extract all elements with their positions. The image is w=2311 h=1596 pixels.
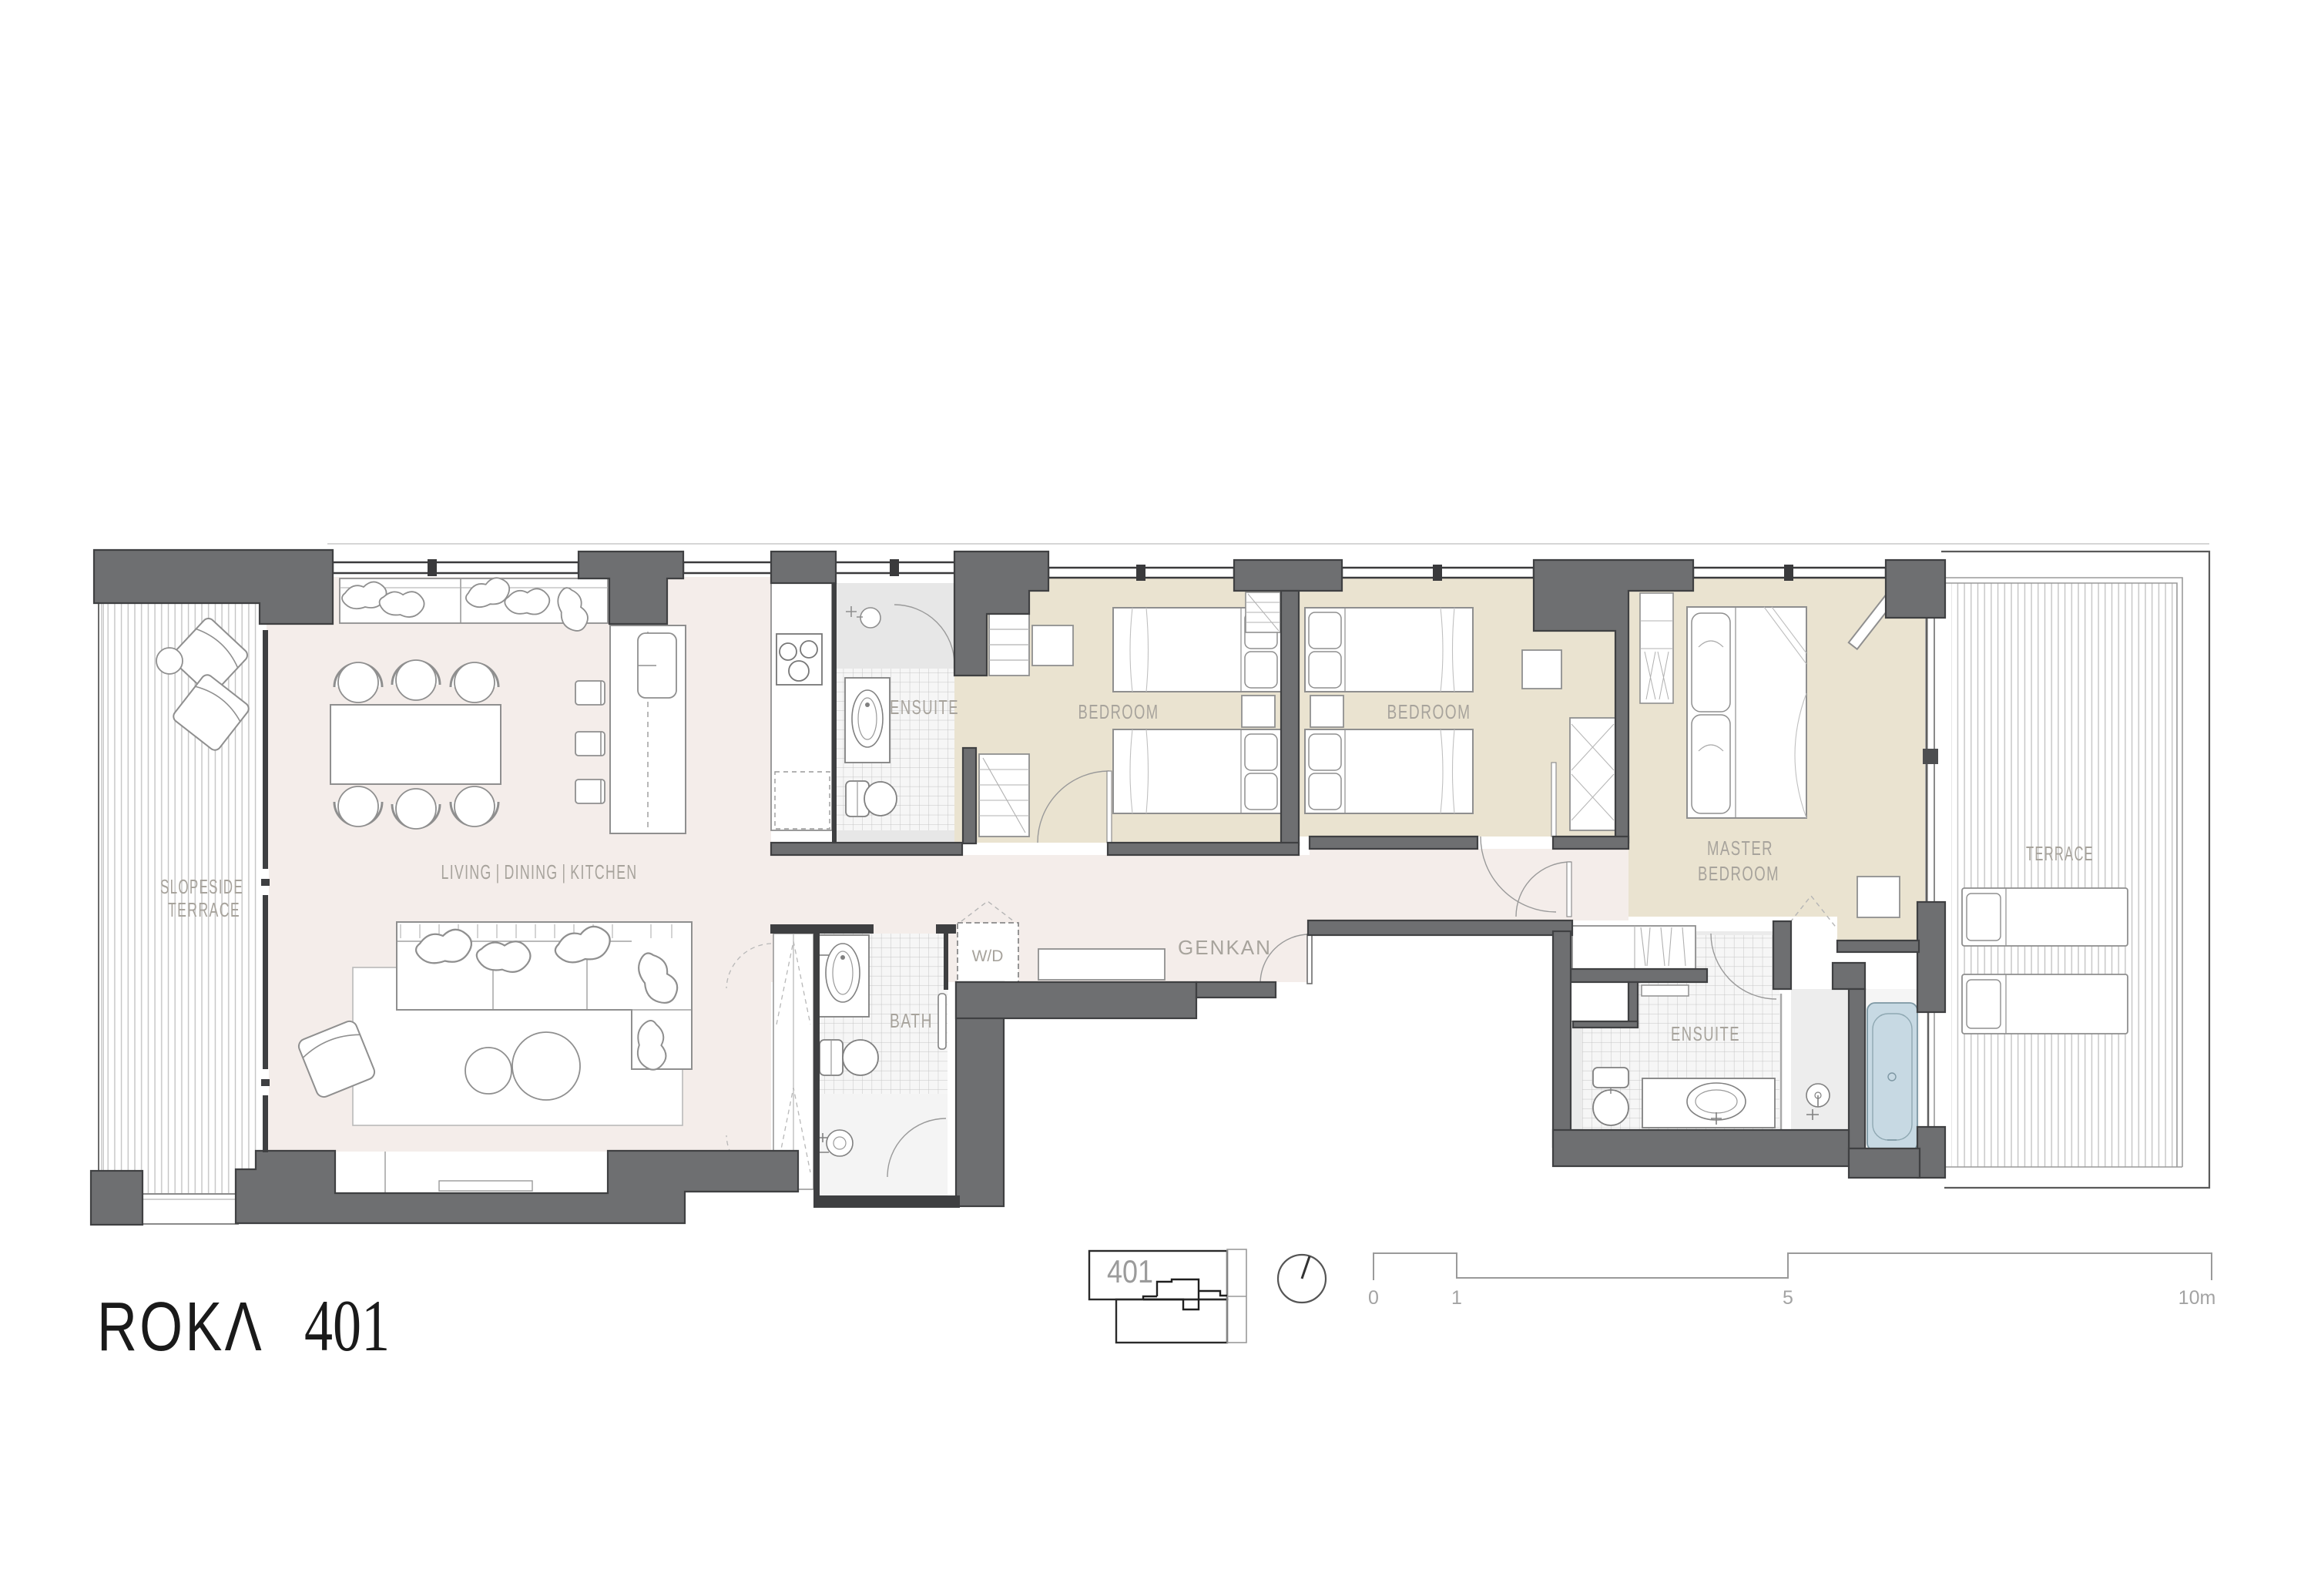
svg-text:ROKΛ: ROKΛ: [97, 1288, 264, 1365]
svg-text:ENSUITE: ENSUITE: [1671, 1022, 1740, 1045]
svg-text:LIVING | DINING | KITCHEN: LIVING | DINING | KITCHEN: [441, 860, 638, 883]
svg-text:BEDROOM: BEDROOM: [1078, 700, 1159, 723]
svg-text:1: 1: [1451, 1287, 1462, 1309]
svg-text:401: 401: [304, 1286, 390, 1366]
svg-text:W/D: W/D: [972, 947, 1004, 965]
svg-text:MASTER: MASTER: [1707, 837, 1773, 860]
svg-text:ENSUITE: ENSUITE: [890, 696, 959, 719]
svg-text:10m: 10m: [2179, 1287, 2216, 1309]
svg-text:0: 0: [1368, 1287, 1379, 1309]
svg-text:TERRACE: TERRACE: [168, 898, 240, 921]
svg-text:TERRACE: TERRACE: [2026, 842, 2094, 865]
svg-text:BEDROOM: BEDROOM: [1698, 862, 1779, 885]
svg-text:BATH: BATH: [890, 1009, 933, 1032]
svg-text:5: 5: [1783, 1287, 1793, 1309]
svg-text:GENKAN: GENKAN: [1178, 936, 1272, 959]
svg-text:BEDROOM: BEDROOM: [1387, 700, 1471, 723]
svg-text:SLOPESIDE: SLOPESIDE: [160, 875, 243, 898]
svg-text:401: 401: [1107, 1253, 1153, 1289]
